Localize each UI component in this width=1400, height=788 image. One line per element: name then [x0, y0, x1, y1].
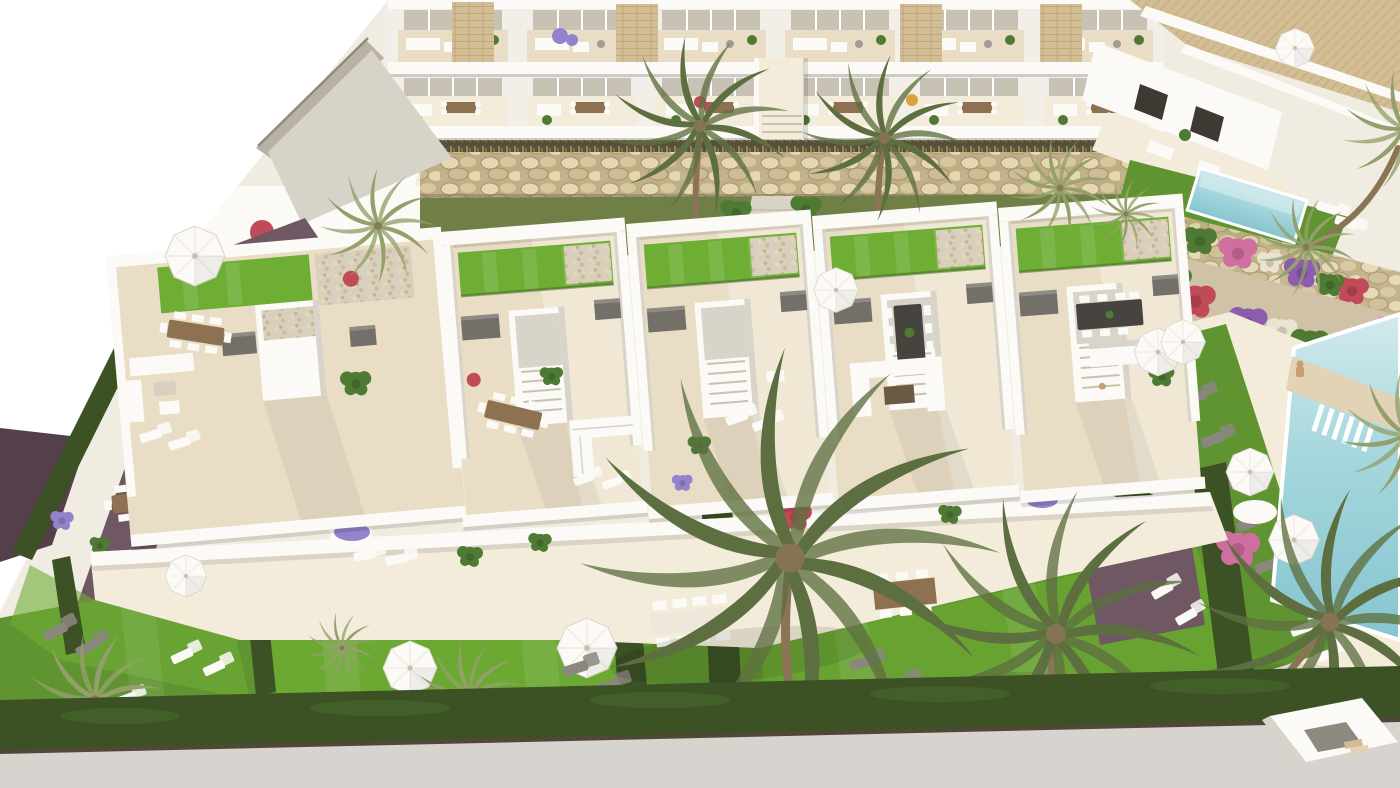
stone-clad-panel	[900, 4, 942, 62]
person-at-pool	[1296, 361, 1304, 378]
balcony-flowers	[906, 94, 918, 106]
gabion-rock-wall	[420, 152, 1148, 198]
stone-clad-panel	[452, 2, 494, 62]
parasol-side	[1233, 500, 1277, 524]
roof-unit-b	[440, 217, 648, 531]
stone-clad-panel	[616, 4, 658, 62]
roof-unit-c	[626, 209, 834, 523]
balcony-flowers	[552, 28, 568, 44]
apartment-block	[385, 0, 1165, 154]
stone-clad-panel	[1040, 4, 1082, 62]
dry-grass-row	[424, 140, 1148, 152]
development-aerial-render	[0, 0, 1400, 788]
render-image	[0, 0, 1400, 788]
roof-unit-a	[106, 227, 467, 551]
